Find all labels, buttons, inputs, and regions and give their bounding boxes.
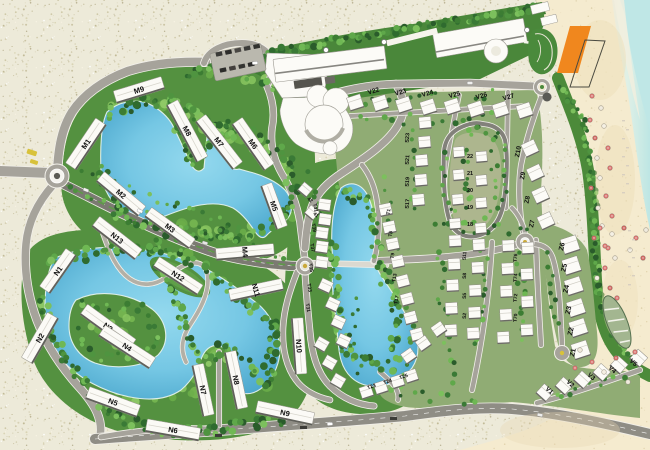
svg-text:20: 20: [467, 188, 473, 194]
svg-text:S5: S5: [462, 292, 469, 299]
svg-text:T74: T74: [513, 273, 520, 282]
svg-text:S11: S11: [462, 251, 469, 260]
svg-text:22: 22: [467, 154, 473, 160]
svg-text:M4: M4: [240, 246, 250, 258]
svg-text:T72: T72: [513, 293, 520, 302]
svg-text:21: 21: [467, 171, 473, 177]
svg-text:T76: T76: [513, 253, 520, 262]
svg-text:S19: S19: [405, 177, 412, 187]
svg-text:S8: S8: [462, 272, 469, 279]
svg-text:S21: S21: [405, 155, 412, 165]
svg-text:T70: T70: [513, 313, 520, 322]
svg-text:S17: S17: [405, 199, 412, 209]
svg-text:18: 18: [467, 222, 473, 228]
svg-text:19: 19: [467, 205, 473, 211]
svg-text:N10: N10: [294, 339, 304, 353]
svg-text:S23: S23: [405, 133, 412, 143]
svg-text:S2: S2: [462, 312, 469, 319]
svg-text:N6: N6: [167, 425, 178, 436]
